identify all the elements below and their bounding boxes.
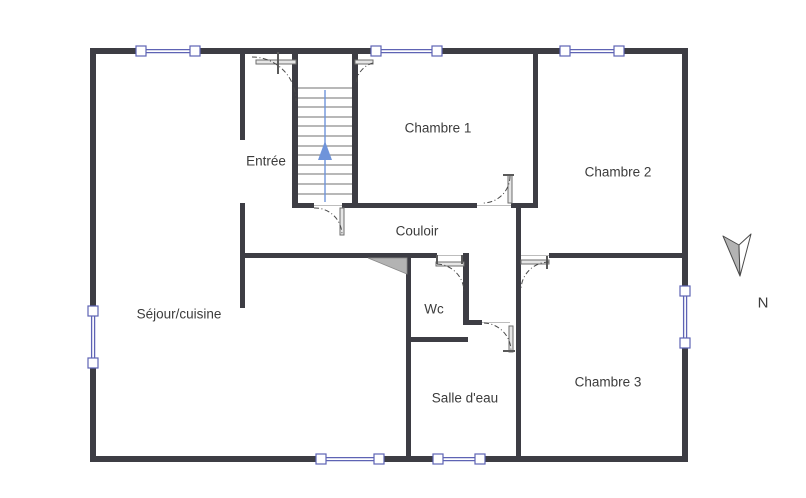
door-wc	[436, 255, 464, 292]
room-label-entree: Entrée	[246, 154, 286, 168]
room-label-sejour-cuisine: Séjour/cuisine	[137, 307, 222, 321]
window-top-right	[560, 46, 624, 56]
staircase	[298, 88, 352, 202]
window-bottom-left	[316, 454, 384, 464]
window-right	[680, 286, 690, 348]
window-bottom-right	[433, 454, 485, 464]
floor-plan-canvas: Entrée Chambre 1 Chambre 2 Couloir Séjou…	[0, 0, 806, 498]
door-stairwell	[314, 206, 344, 236]
floor-plan-svg	[0, 0, 806, 498]
window-top-middle	[371, 46, 442, 56]
door-salle-deau	[482, 323, 515, 353]
compass-north-label: N	[758, 296, 769, 311]
under-stairs-area	[368, 258, 407, 274]
room-label-salle-deau: Salle d'eau	[432, 391, 498, 405]
room-label-couloir: Couloir	[396, 224, 439, 238]
room-label-wc: Wc	[424, 302, 444, 316]
window-top-left	[136, 46, 200, 56]
door-chambre3	[521, 256, 549, 291]
room-label-chambre3: Chambre 3	[575, 375, 642, 389]
north-arrow-icon	[723, 234, 751, 276]
room-label-chambre1: Chambre 1	[405, 121, 472, 135]
stair-direction-arrow	[318, 141, 332, 160]
door-chambre1	[477, 174, 514, 206]
door-entrance	[252, 52, 296, 101]
window-left	[88, 306, 98, 368]
room-label-chambre2: Chambre 2	[585, 165, 652, 179]
